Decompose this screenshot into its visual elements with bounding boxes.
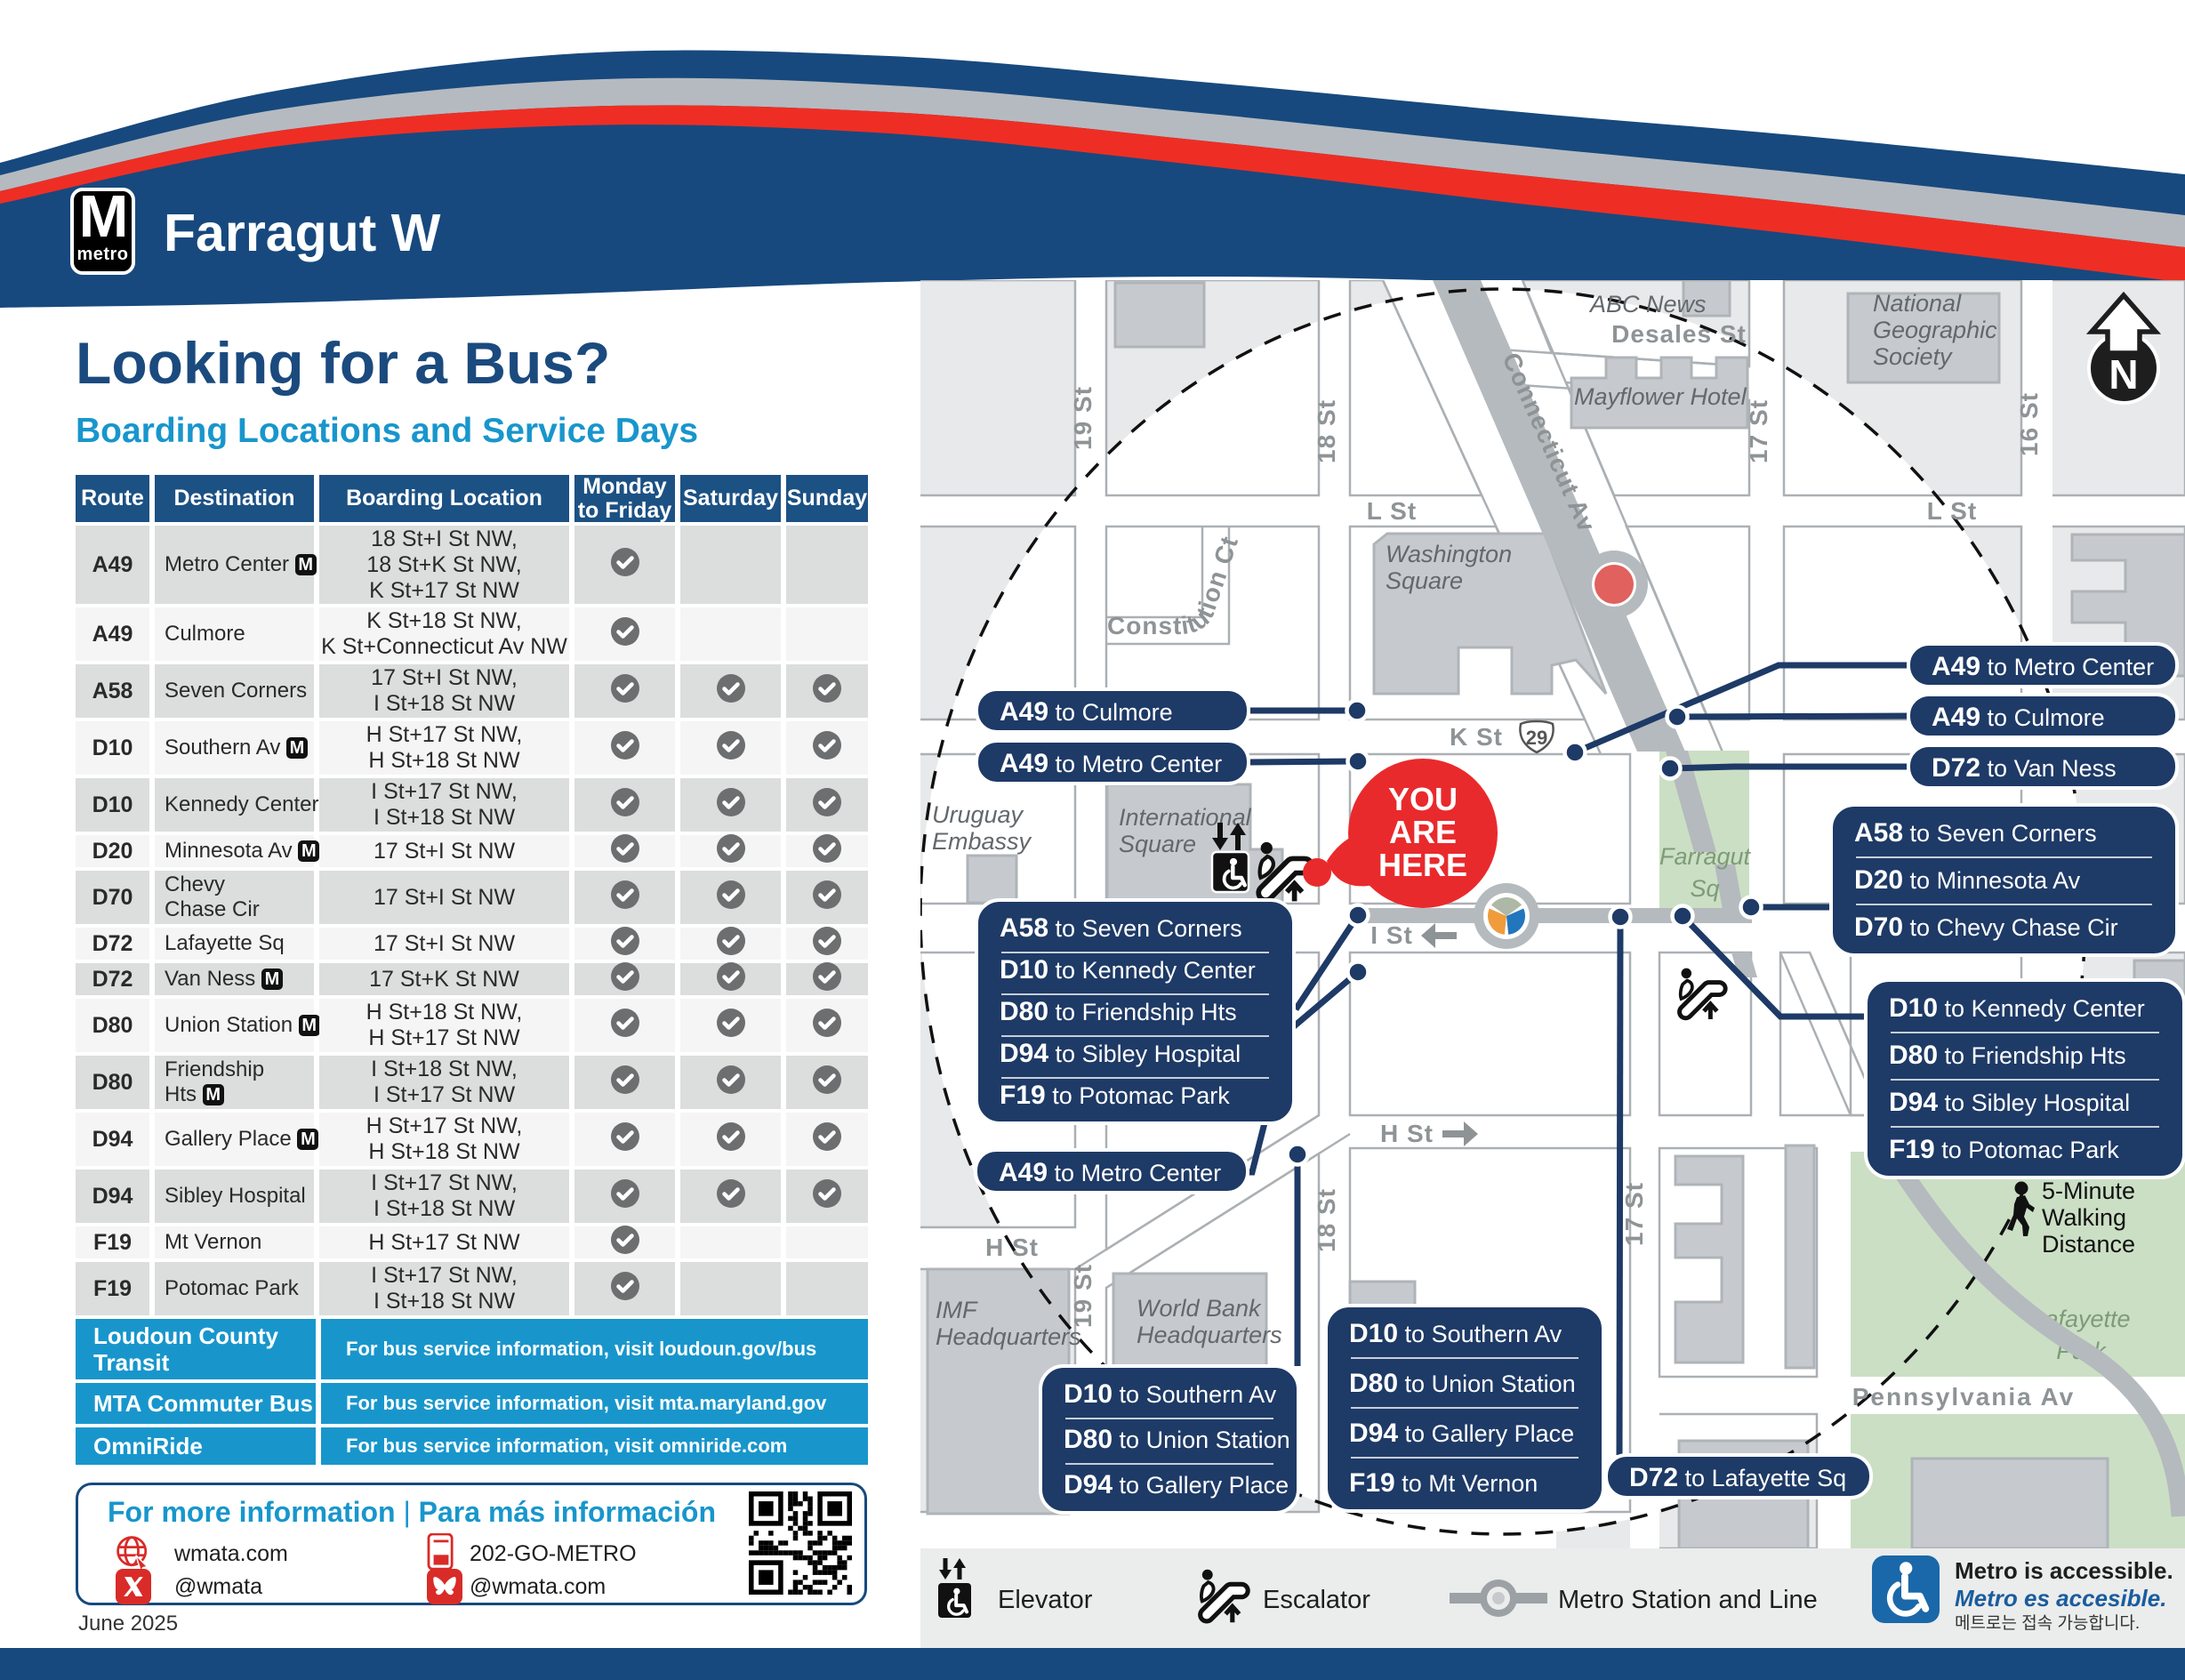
svg-text:Metro es accesible.: Metro es accesible. (1955, 1585, 2166, 1612)
svg-text:L St: L St (1367, 497, 1417, 525)
svg-text:F19 to Potomac Park: F19 to Potomac Park (1000, 1081, 1230, 1110)
svg-text:5-MinuteWalkingDistance: 5-MinuteWalkingDistance (2042, 1178, 2135, 1258)
svg-text:I St: I St (1370, 921, 1413, 949)
svg-text:D80 to Union Station: D80 to Union Station (1349, 1369, 1576, 1398)
svg-text:Pennsylvania Av: Pennsylvania Av (1852, 1383, 2075, 1411)
svg-text:F19 to Mt Vernon: F19 to Mt Vernon (1349, 1468, 1538, 1498)
svg-text:D80 to Union Station: D80 to Union Station (1064, 1425, 1290, 1454)
svg-text:D94 to Gallery Place: D94 to Gallery Place (1064, 1470, 1289, 1499)
svg-text:YOU: YOU (1388, 781, 1458, 817)
svg-text:HERE: HERE (1378, 847, 1467, 883)
svg-text:A58 to Seven Corners: A58 to Seven Corners (1854, 818, 2097, 848)
svg-text:A49 to Metro Center: A49 to Metro Center (1000, 749, 1222, 778)
svg-text:D10 to Southern Av: D10 to Southern Av (1064, 1379, 1277, 1409)
svg-text:A49 to Metro Center: A49 to Metro Center (1932, 652, 2154, 681)
svg-text:H St: H St (985, 1234, 1039, 1261)
svg-text:Escalator: Escalator (1263, 1586, 1370, 1614)
svg-text:Mayflower Hotel: Mayflower Hotel (1574, 383, 1747, 410)
svg-text:Elevator: Elevator (998, 1586, 1093, 1614)
svg-text:A49 to Culmore: A49 to Culmore (1932, 703, 2105, 732)
svg-text:D10 to Southern Av: D10 to Southern Av (1349, 1319, 1562, 1348)
svg-text:18 St: 18 St (1313, 399, 1340, 463)
svg-text:F19 to Potomac Park: F19 to Potomac Park (1889, 1135, 2119, 1164)
svg-text:D10 to Kennedy Center: D10 to Kennedy Center (1889, 993, 2145, 1023)
svg-text:D72 to Van Ness: D72 to Van Ness (1932, 753, 2117, 783)
svg-text:17 St: 17 St (1745, 399, 1772, 463)
svg-text:16 St: 16 St (2015, 392, 2043, 456)
svg-text:A49 to Culmore: A49 to Culmore (1000, 697, 1173, 727)
svg-text:Desales St: Desales St (1611, 320, 1747, 348)
svg-text:17 St: 17 St (1620, 1182, 1648, 1246)
svg-text:D94 to Sibley Hospital: D94 to Sibley Hospital (1000, 1039, 1241, 1068)
svg-text:World BankHeadquarters: World BankHeadquarters (1137, 1295, 1282, 1348)
svg-text:Metro Station and Line: Metro Station and Line (1558, 1586, 1818, 1614)
svg-text:18 St: 18 St (1313, 1188, 1340, 1252)
svg-text:N: N (2109, 351, 2138, 398)
svg-text:D80 to Friendship Hts: D80 to Friendship Hts (1000, 997, 1237, 1026)
svg-text:D72 to Lafayette Sq: D72 to Lafayette Sq (1629, 1463, 1846, 1492)
svg-text:UruguayEmbassy: UruguayEmbassy (932, 801, 1032, 855)
svg-text:D80 to Friendship Hts: D80 to Friendship Hts (1889, 1041, 2126, 1070)
svg-text:ABC News: ABC News (1588, 291, 1707, 318)
svg-text:메트로는 접속 가능합니다.: 메트로는 접속 가능합니다. (1955, 1613, 2140, 1633)
svg-text:A58 to Seven Corners: A58 to Seven Corners (1000, 913, 1242, 943)
svg-text:D94 to Sibley Hospital: D94 to Sibley Hospital (1889, 1088, 2130, 1117)
svg-text:29: 29 (1526, 727, 1547, 749)
svg-text:A49 to Metro Center: A49 to Metro Center (999, 1158, 1221, 1187)
svg-text:L St: L St (1927, 497, 1977, 525)
svg-text:K St: K St (1450, 723, 1503, 751)
svg-text:D94 to Gallery Place: D94 to Gallery Place (1349, 1419, 1574, 1448)
svg-text:D70 to Chevy Chase Cir: D70 to Chevy Chase Cir (1854, 912, 2118, 942)
svg-text:19 St: 19 St (1069, 386, 1097, 450)
svg-text:H St: H St (1380, 1120, 1434, 1147)
svg-text:D10 to Kennedy Center: D10 to Kennedy Center (1000, 955, 1256, 985)
svg-text:Metro is accessible.: Metro is accessible. (1955, 1557, 2173, 1584)
svg-text:ARE: ARE (1389, 814, 1457, 850)
svg-text:D20 to Minnesota Av: D20 to Minnesota Av (1854, 865, 2081, 895)
svg-text:19 St: 19 St (1069, 1264, 1097, 1328)
